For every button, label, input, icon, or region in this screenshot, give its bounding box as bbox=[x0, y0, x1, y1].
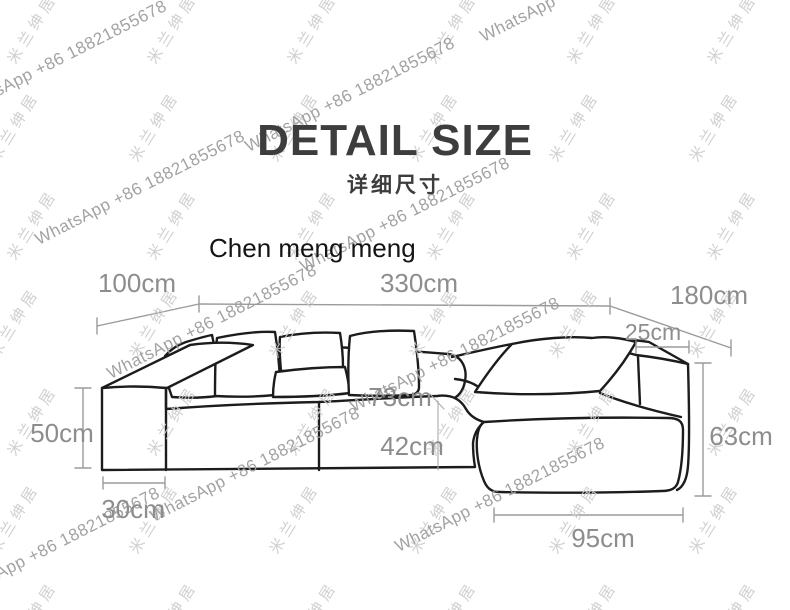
page-title: DETAIL SIZE bbox=[257, 116, 533, 166]
dim-label-seat-height: 42cm bbox=[380, 432, 444, 461]
product-size-image: 米兰绅居米兰绅居米兰绅居米兰绅居米兰绅居米兰绅居米兰绅居米兰绅居米兰绅居米兰绅居… bbox=[0, 0, 790, 610]
pillow bbox=[280, 333, 343, 371]
back-lower-line bbox=[455, 379, 477, 386]
dim-label-arm-width: 30cm bbox=[101, 495, 165, 524]
dim-line-95 bbox=[494, 508, 683, 522]
dim-line-30 bbox=[103, 477, 165, 489]
chaise-front bbox=[477, 418, 683, 493]
dim-label-back-height: 73cm bbox=[368, 383, 432, 412]
dim-label-chaise-seat-width: 95cm bbox=[571, 524, 635, 553]
dim-line-330 bbox=[199, 304, 610, 306]
dim-label-chaise-height: 63cm bbox=[709, 422, 773, 451]
dim-label-total-width: 330cm bbox=[380, 269, 458, 298]
dim-label-left-depth: 100cm bbox=[98, 269, 176, 298]
armrest-inner-edge bbox=[638, 357, 640, 404]
product-name: Chen meng meng bbox=[209, 233, 416, 264]
dim-line-100 bbox=[97, 304, 199, 326]
dim-label-arm-height: 50cm bbox=[30, 419, 94, 448]
backrest-end-curl bbox=[448, 354, 466, 400]
page-subtitle: 详细尺寸 bbox=[347, 169, 443, 199]
pillow bbox=[215, 332, 280, 397]
dim-label-chaise-depth: 180cm bbox=[670, 281, 748, 310]
dim-label-armrest-width: 25cm bbox=[625, 320, 681, 345]
lumbar-pillow bbox=[273, 367, 350, 397]
